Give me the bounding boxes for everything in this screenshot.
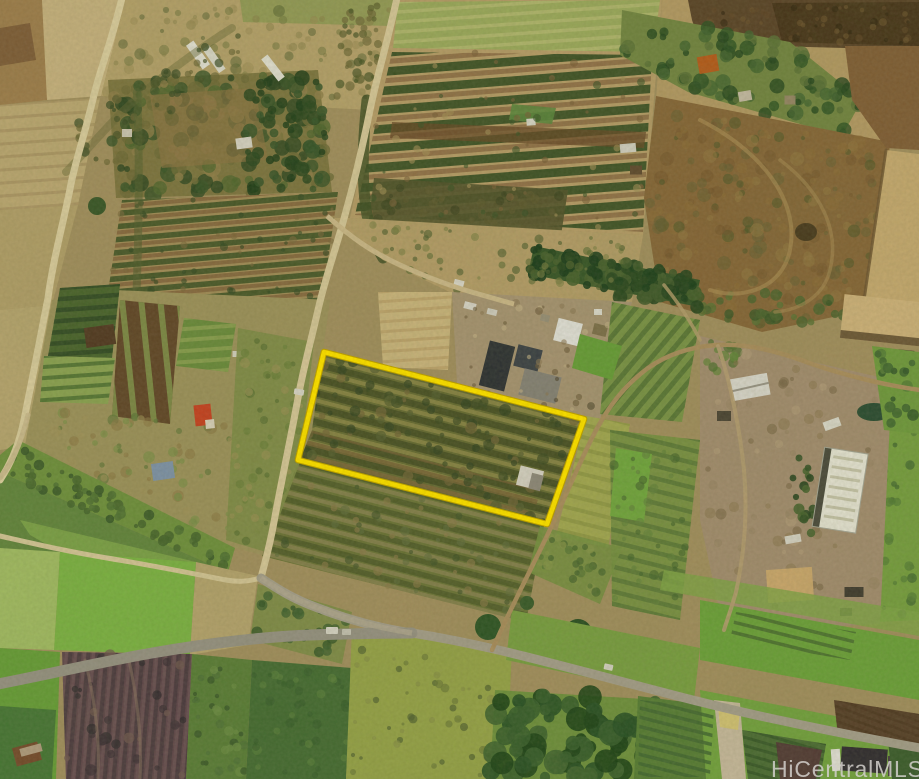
svg-text:HiCentralMLS: HiCentralMLS (771, 756, 919, 779)
